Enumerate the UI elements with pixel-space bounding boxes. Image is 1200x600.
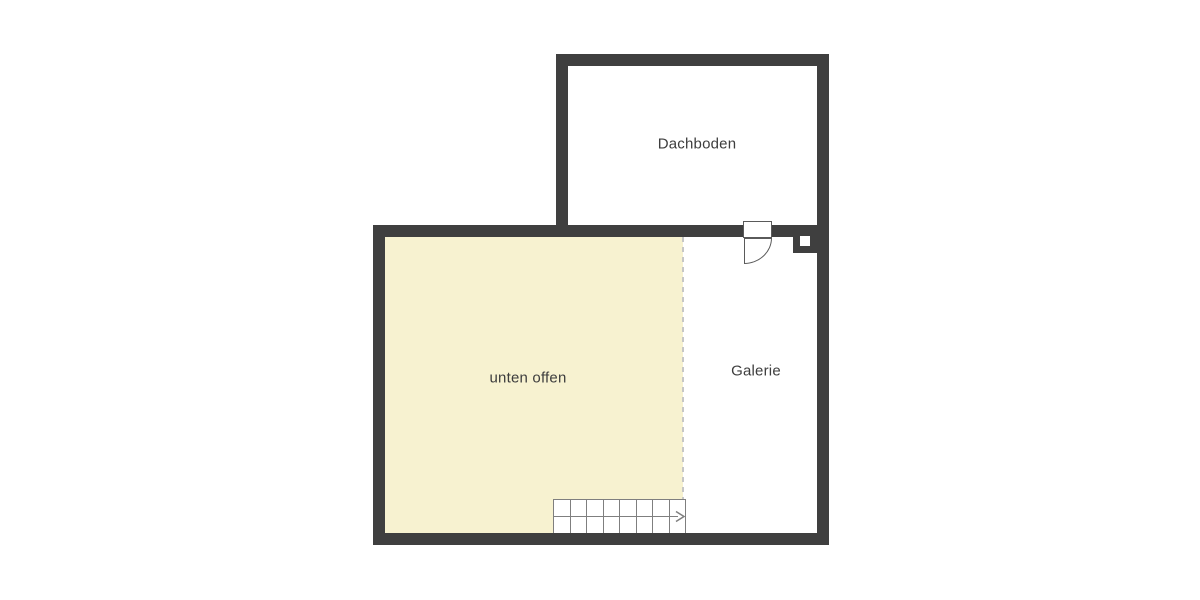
room-label-galerie: Galerie — [731, 363, 781, 380]
wall-dachboden-left — [556, 54, 568, 237]
wall-dachboden-top — [556, 54, 829, 66]
stairs-direction-arrow-icon — [674, 510, 686, 523]
room-label-dachboden: Dachboden — [658, 136, 737, 153]
wall-right — [817, 54, 829, 545]
door-frame-icon — [743, 221, 772, 238]
room-label-unten-offen: unten offen — [490, 370, 567, 387]
stairs-center-line — [553, 516, 678, 517]
gallery-edge-dashed-line — [682, 237, 684, 499]
chimney-flue — [800, 236, 810, 246]
wall-bottom — [373, 533, 829, 545]
wall-lower-left — [373, 225, 385, 545]
floor-plan: Dachboden unten offen Galerie — [0, 0, 1200, 600]
area-galerie — [683, 237, 817, 533]
